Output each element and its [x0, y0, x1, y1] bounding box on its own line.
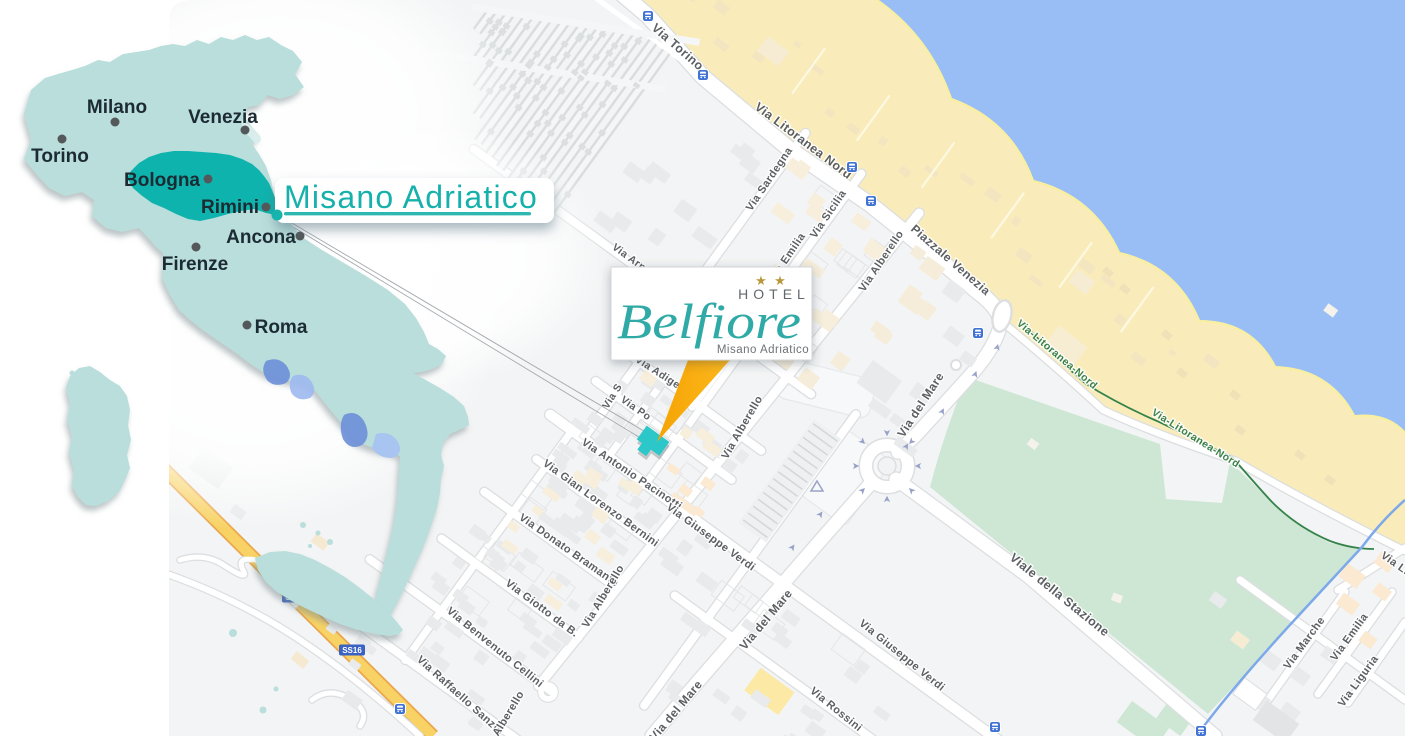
svg-text:Misano Adriatico: Misano Adriatico — [284, 179, 538, 215]
svg-text:Bologna: Bologna — [124, 170, 200, 191]
svg-text:Ancona: Ancona — [226, 227, 296, 248]
svg-text:Venezia: Venezia — [188, 107, 258, 128]
svg-text:Misano Adriatico: Misano Adriatico — [717, 344, 809, 356]
svg-text:Torino: Torino — [31, 146, 89, 167]
svg-text:Belfiore: Belfiore — [617, 293, 801, 349]
svg-text:Milano: Milano — [87, 97, 147, 118]
svg-text:Roma: Roma — [255, 317, 308, 338]
svg-text:SS16: SS16 — [342, 646, 362, 655]
svg-text:Firenze: Firenze — [162, 254, 229, 275]
svg-text:Rimini: Rimini — [201, 197, 259, 218]
